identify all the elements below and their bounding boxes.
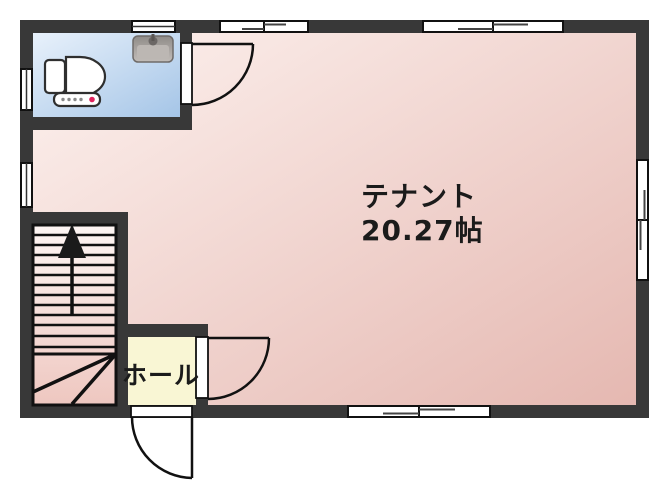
tenant-name: テナント [361, 180, 484, 214]
wall-bottom [20, 405, 649, 418]
floor-plan: テナント 20.27帖 ホール [0, 0, 667, 500]
panel-button [79, 98, 82, 101]
room-label-hall: ホール [122, 356, 200, 392]
wall-toilet-bottom [33, 117, 192, 130]
door-opening [181, 43, 192, 104]
window-right-sliding [637, 160, 648, 280]
panel-button-red [89, 97, 95, 103]
window-bottom-sliding [348, 406, 490, 417]
floor-plan-drawing [0, 0, 667, 500]
door-opening [131, 406, 192, 417]
wall-stairs-top [20, 212, 128, 225]
room-label-tenant: テナント 20.27帖 [361, 180, 484, 248]
hand-wash-sink-icon [133, 34, 173, 62]
door-entrance [131, 406, 192, 478]
toilet-tank [45, 60, 65, 93]
tenant-area: 20.27帖 [361, 214, 484, 248]
window-top-fixed [132, 21, 175, 32]
panel-button [61, 98, 64, 101]
door-swing-arc [132, 417, 192, 478]
wall-hall-top [128, 324, 208, 337]
window-top-sliding-1 [220, 21, 308, 32]
window-top-sliding-2 [423, 21, 563, 32]
window-left-lower [21, 163, 32, 207]
panel-button [73, 98, 76, 101]
panel-button [67, 98, 70, 101]
toilet-icon [45, 57, 105, 106]
toilet-bowl [66, 57, 105, 96]
window-left-upper [21, 69, 32, 110]
